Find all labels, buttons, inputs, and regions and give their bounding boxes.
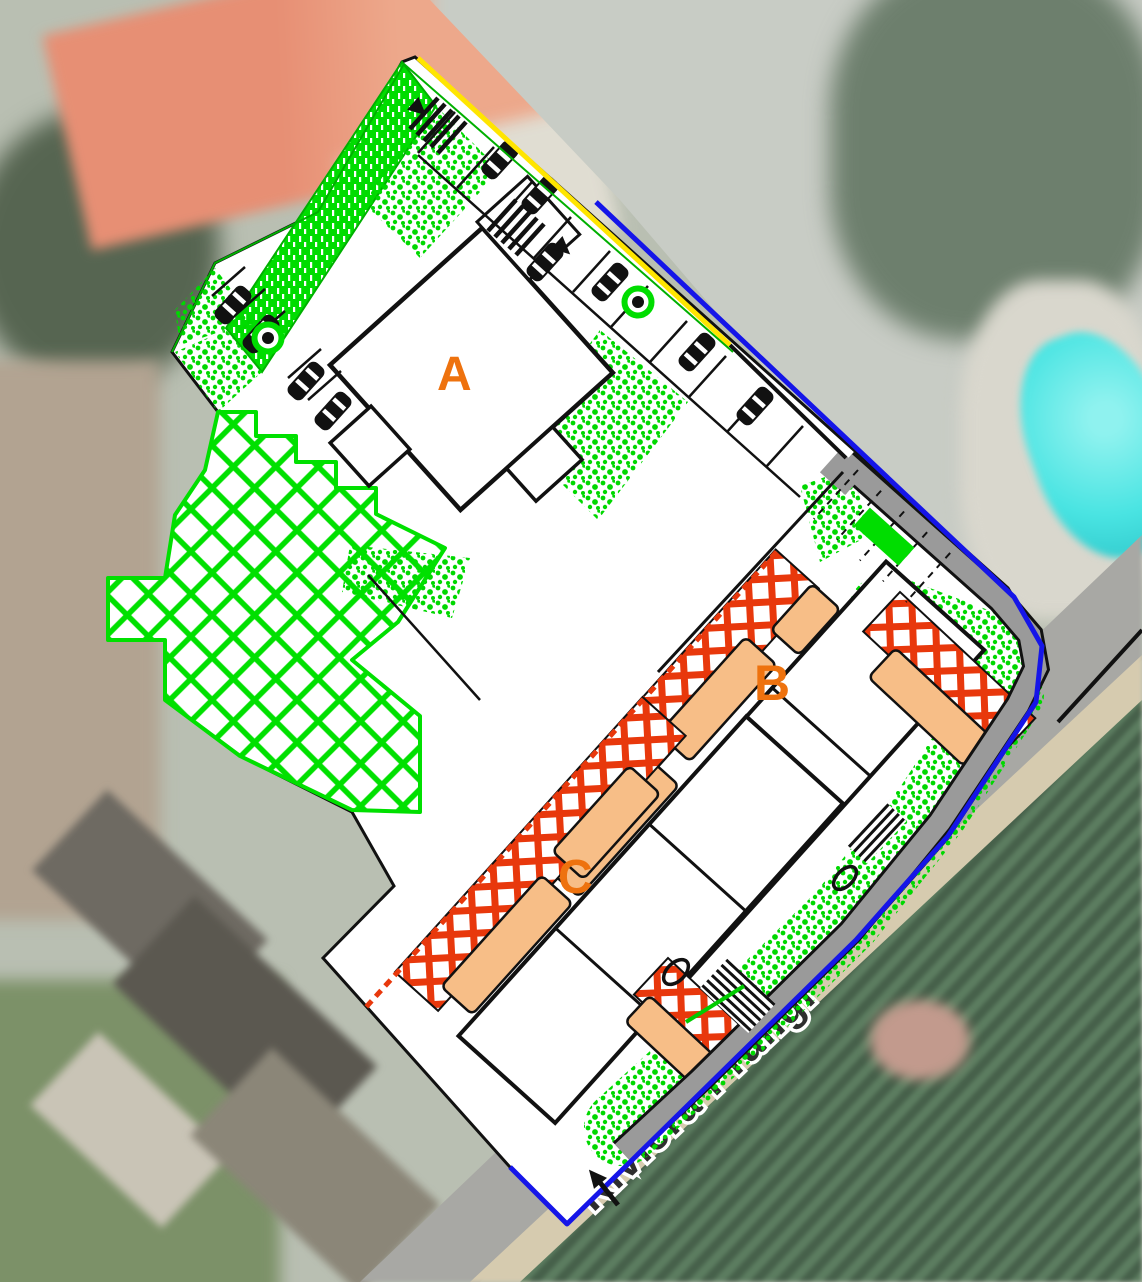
building-b-label: B xyxy=(754,655,790,711)
site-plan-overlay: Riviera Prangi xyxy=(0,0,1142,1282)
building-c-label: C xyxy=(558,851,593,904)
site-plan-map: Riviera Prangi xyxy=(0,0,1142,1282)
tree-icon xyxy=(255,325,282,352)
building-a-label: A xyxy=(437,348,472,401)
tree-icon xyxy=(625,289,652,316)
